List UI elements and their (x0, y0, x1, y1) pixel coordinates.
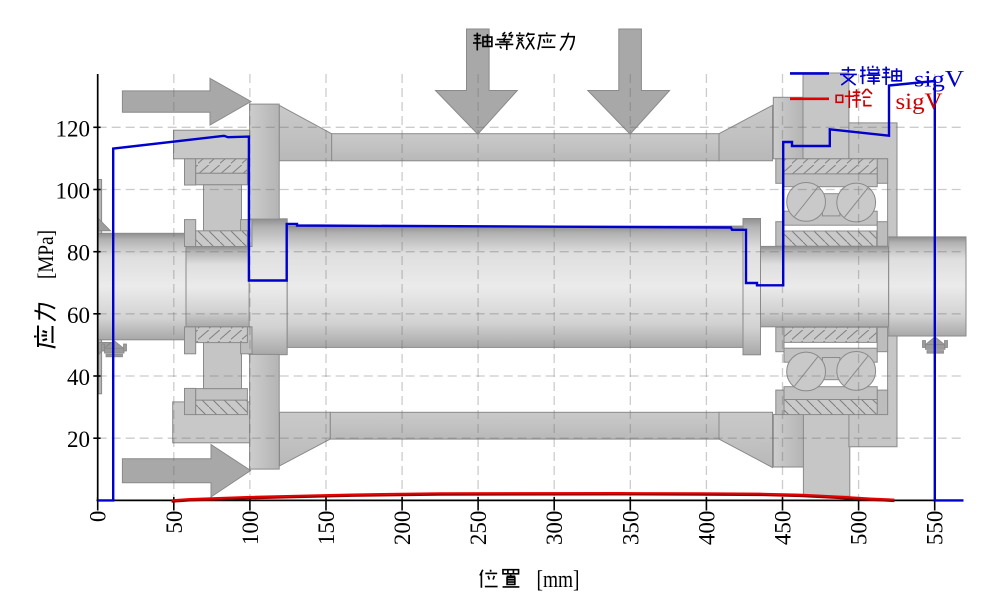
svg-text:250: 250 (466, 511, 491, 545)
svg-text:60: 60 (67, 303, 90, 328)
svg-text:[MPa]: [MPa] (33, 230, 58, 279)
svg-text:150: 150 (314, 511, 339, 545)
svg-text:80: 80 (67, 241, 90, 266)
svg-text:300: 300 (542, 511, 567, 545)
svg-text:450: 450 (771, 511, 796, 545)
svg-text:120: 120 (56, 116, 91, 141)
svg-text:20: 20 (67, 427, 90, 452)
svg-text:400: 400 (694, 511, 719, 545)
svg-text:200: 200 (390, 511, 415, 545)
svg-text:[mm]: [mm] (537, 567, 580, 593)
svg-text:500: 500 (847, 511, 872, 545)
svg-text:100: 100 (56, 179, 91, 204)
svg-text:100: 100 (238, 511, 263, 545)
svg-text:50: 50 (162, 511, 187, 534)
svg-text:sigV: sigV (896, 89, 943, 115)
svg-text:350: 350 (618, 511, 643, 545)
svg-text:550: 550 (923, 511, 948, 545)
svg-text:0: 0 (86, 511, 111, 522)
svg-text:40: 40 (67, 365, 90, 390)
